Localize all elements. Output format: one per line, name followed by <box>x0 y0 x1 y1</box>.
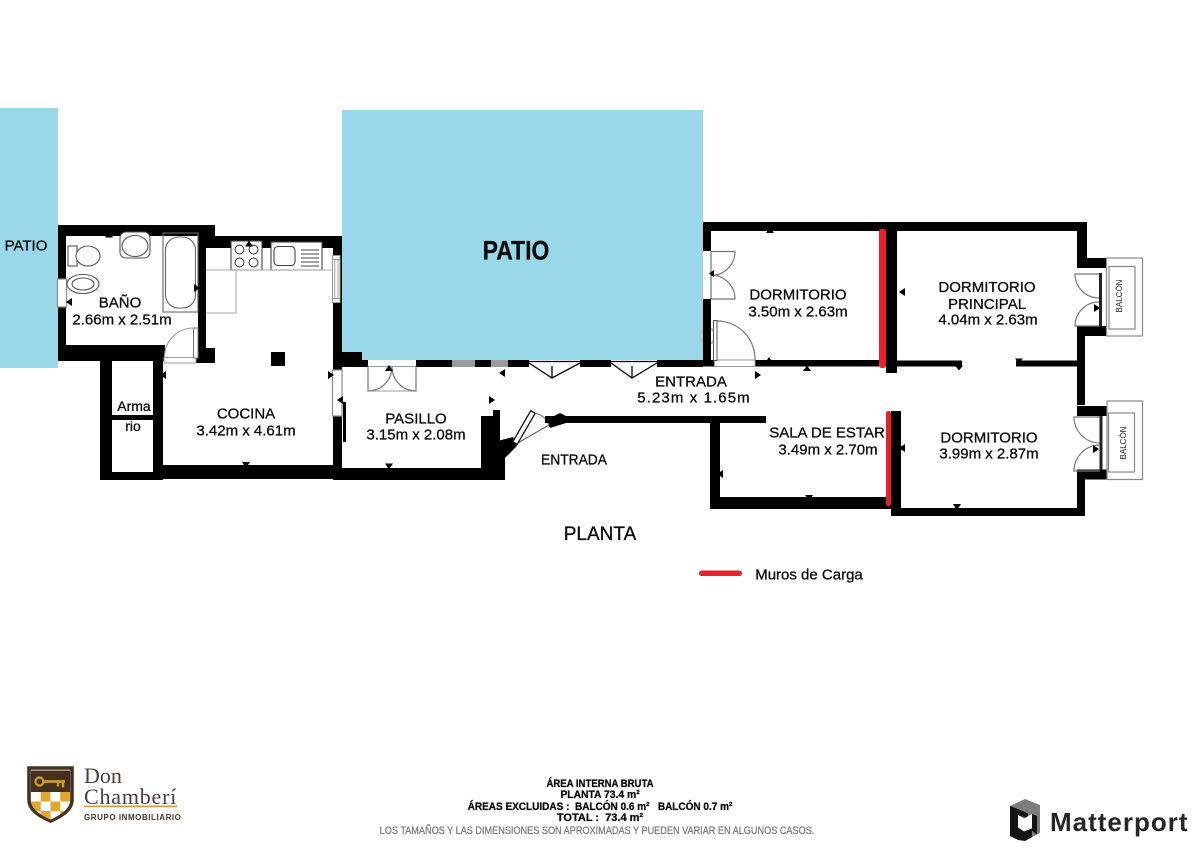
svg-text:BALCÓN: BALCÓN <box>1119 426 1128 459</box>
svg-text:BALCÓN: BALCÓN <box>1115 279 1124 312</box>
